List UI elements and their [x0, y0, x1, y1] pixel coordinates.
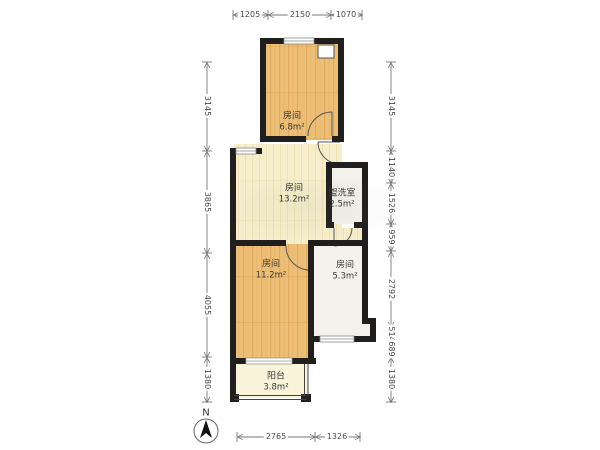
- dim-left-4: 1380: [202, 367, 212, 391]
- floor-plan-svg: [0, 0, 600, 450]
- dim-right-5: 2792: [386, 277, 396, 301]
- room-label-bedroom-mid: 房间 11.2m²: [256, 260, 287, 281]
- dim-right-1: 3145: [386, 94, 396, 118]
- dim-top-2: 2150: [288, 10, 312, 20]
- dim-bottom-2: 1326: [325, 432, 349, 442]
- dim-right-2: 1140: [386, 155, 396, 179]
- dim-right-3: 1526: [386, 191, 396, 215]
- dim-left-1: 3145: [202, 94, 212, 118]
- room-floors: [234, 40, 372, 398]
- compass-north-label: N: [202, 408, 209, 419]
- dim-top-1: 1205: [238, 10, 262, 20]
- dim-right-4: 959: [386, 227, 396, 246]
- floor-plan-canvas: 房间 6.8m² 房间 13.2m² 盥洗室 2.5m² 房间 11.2m² 房…: [0, 0, 600, 450]
- room-label-washroom: 盥洗室 2.5m²: [328, 189, 355, 210]
- room-label-bedroom-large: 房间 13.2m²: [279, 184, 310, 205]
- dim-right-7: 689: [386, 339, 396, 358]
- dim-left-2: 3865: [202, 190, 212, 214]
- dim-left-3: 4055: [202, 293, 212, 317]
- dim-top-3: 1070: [334, 10, 358, 20]
- room-label-bedroom-small: 房间 6.8m²: [279, 112, 304, 133]
- north-arrow-icon: [194, 419, 218, 443]
- cabinet-fixture: [318, 45, 334, 58]
- dim-right-8: 1380: [386, 367, 396, 391]
- room-label-balcony: 阳台 3.8m²: [263, 372, 288, 393]
- dim-bottom-1: 2765: [264, 432, 288, 442]
- room-label-room-right: 房间 5.3m²: [332, 261, 357, 282]
